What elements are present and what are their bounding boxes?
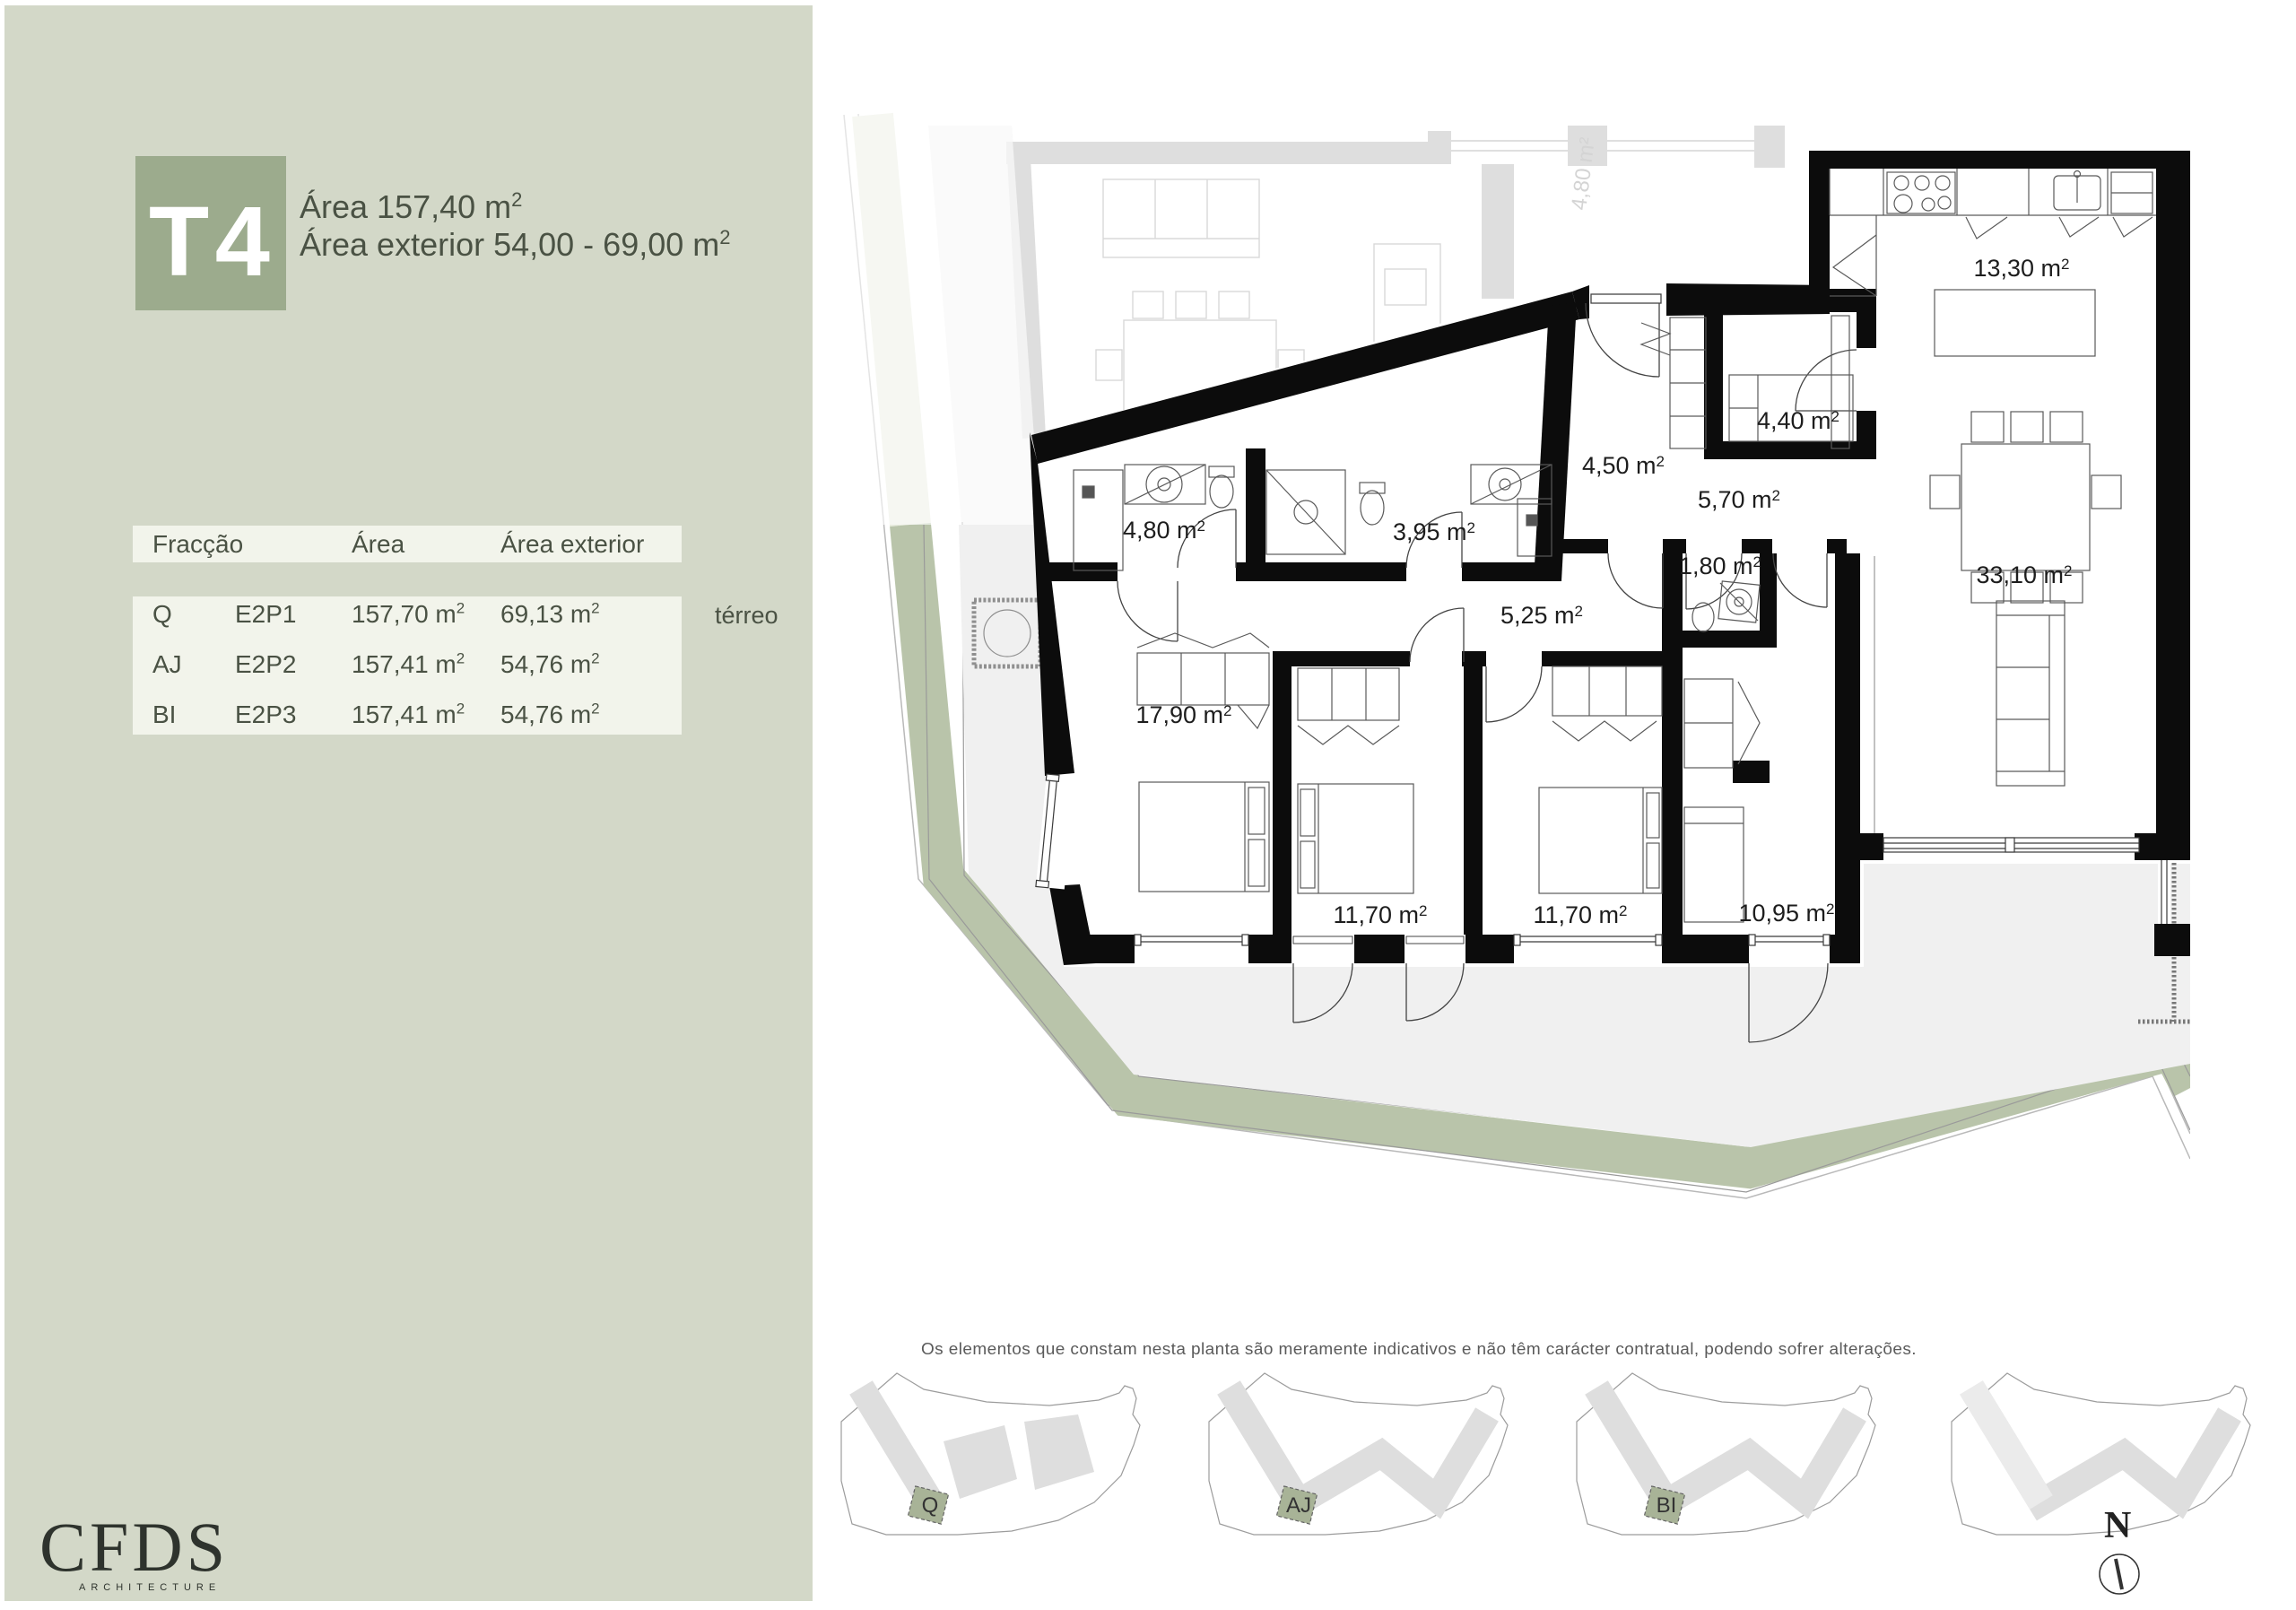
svg-text:4,40 m2: 4,40 m2 <box>1757 407 1839 434</box>
svg-text:5,70 m2: 5,70 m2 <box>1698 486 1780 513</box>
svg-text:Q: Q <box>922 1493 939 1518</box>
svg-text:4,50 m2: 4,50 m2 <box>1582 452 1665 479</box>
svg-text:33,10 m2: 33,10 m2 <box>1976 561 2072 588</box>
svg-text:10,95 m2: 10,95 m2 <box>1738 900 1834 927</box>
svg-text:N: N <box>2104 1505 2131 1546</box>
svg-text:11,70 m2: 11,70 m2 <box>1333 901 1427 928</box>
svg-text:AJ: AJ <box>1286 1493 1311 1518</box>
svg-text:Os elementos que constam nesta: Os elementos que constam nesta planta sã… <box>921 1340 1917 1358</box>
svg-text:11,70 m2: 11,70 m2 <box>1533 901 1627 928</box>
svg-text:BI: BI <box>1657 1493 1677 1518</box>
svg-text:17,90 m2: 17,90 m2 <box>1135 701 1231 728</box>
svg-text:13,30 m2: 13,30 m2 <box>1973 255 2069 282</box>
svg-text:3,95 m2: 3,95 m2 <box>1393 518 1475 545</box>
svg-text:5,25 m2: 5,25 m2 <box>1500 602 1583 629</box>
svg-text:1,80 m2: 1,80 m2 <box>1679 553 1761 579</box>
svg-text:4,80 m2: 4,80 m2 <box>1123 517 1205 544</box>
